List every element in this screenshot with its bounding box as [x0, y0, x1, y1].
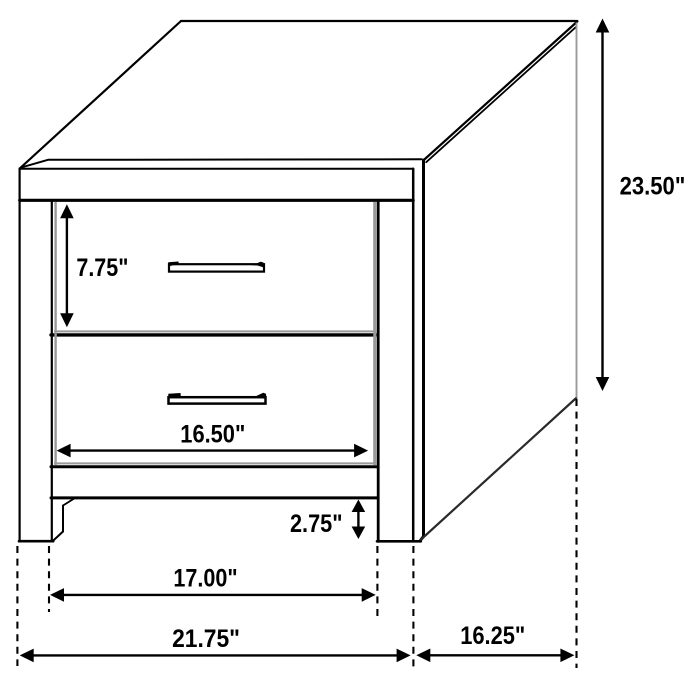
svg-text:16.25": 16.25" — [460, 622, 525, 650]
svg-text:7.75": 7.75" — [76, 254, 128, 282]
svg-text:17.00": 17.00" — [173, 565, 237, 593]
svg-text:16.50": 16.50" — [180, 420, 245, 448]
svg-text:23.50": 23.50" — [620, 172, 686, 200]
svg-text:21.75": 21.75" — [172, 625, 240, 653]
svg-text:2.75": 2.75" — [290, 510, 343, 538]
